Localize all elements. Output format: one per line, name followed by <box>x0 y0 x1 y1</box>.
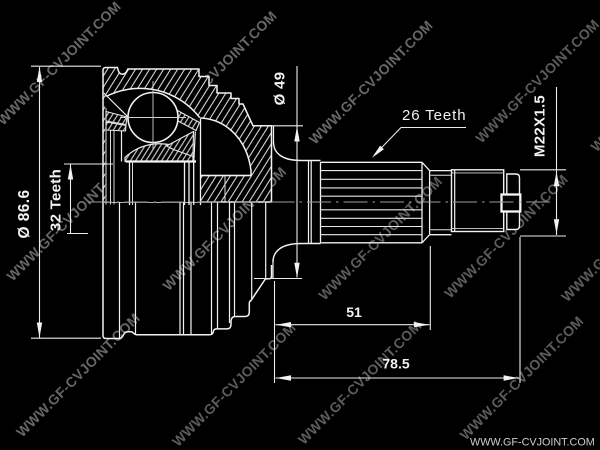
svg-text:51: 51 <box>346 304 362 320</box>
svg-text:M22X1.5: M22X1.5 <box>532 95 549 157</box>
svg-text:78.5: 78.5 <box>382 356 409 372</box>
svg-text:Ø 49: Ø 49 <box>272 72 289 106</box>
svg-text:32 Teeth: 32 Teeth <box>48 169 65 231</box>
svg-text:Ø 86.6: Ø 86.6 <box>16 190 33 239</box>
svg-text:WWW.GF-CVJOINT.COM: WWW.GF-CVJOINT.COM <box>470 437 595 449</box>
svg-text:26 Teeth: 26 Teeth <box>402 107 466 124</box>
